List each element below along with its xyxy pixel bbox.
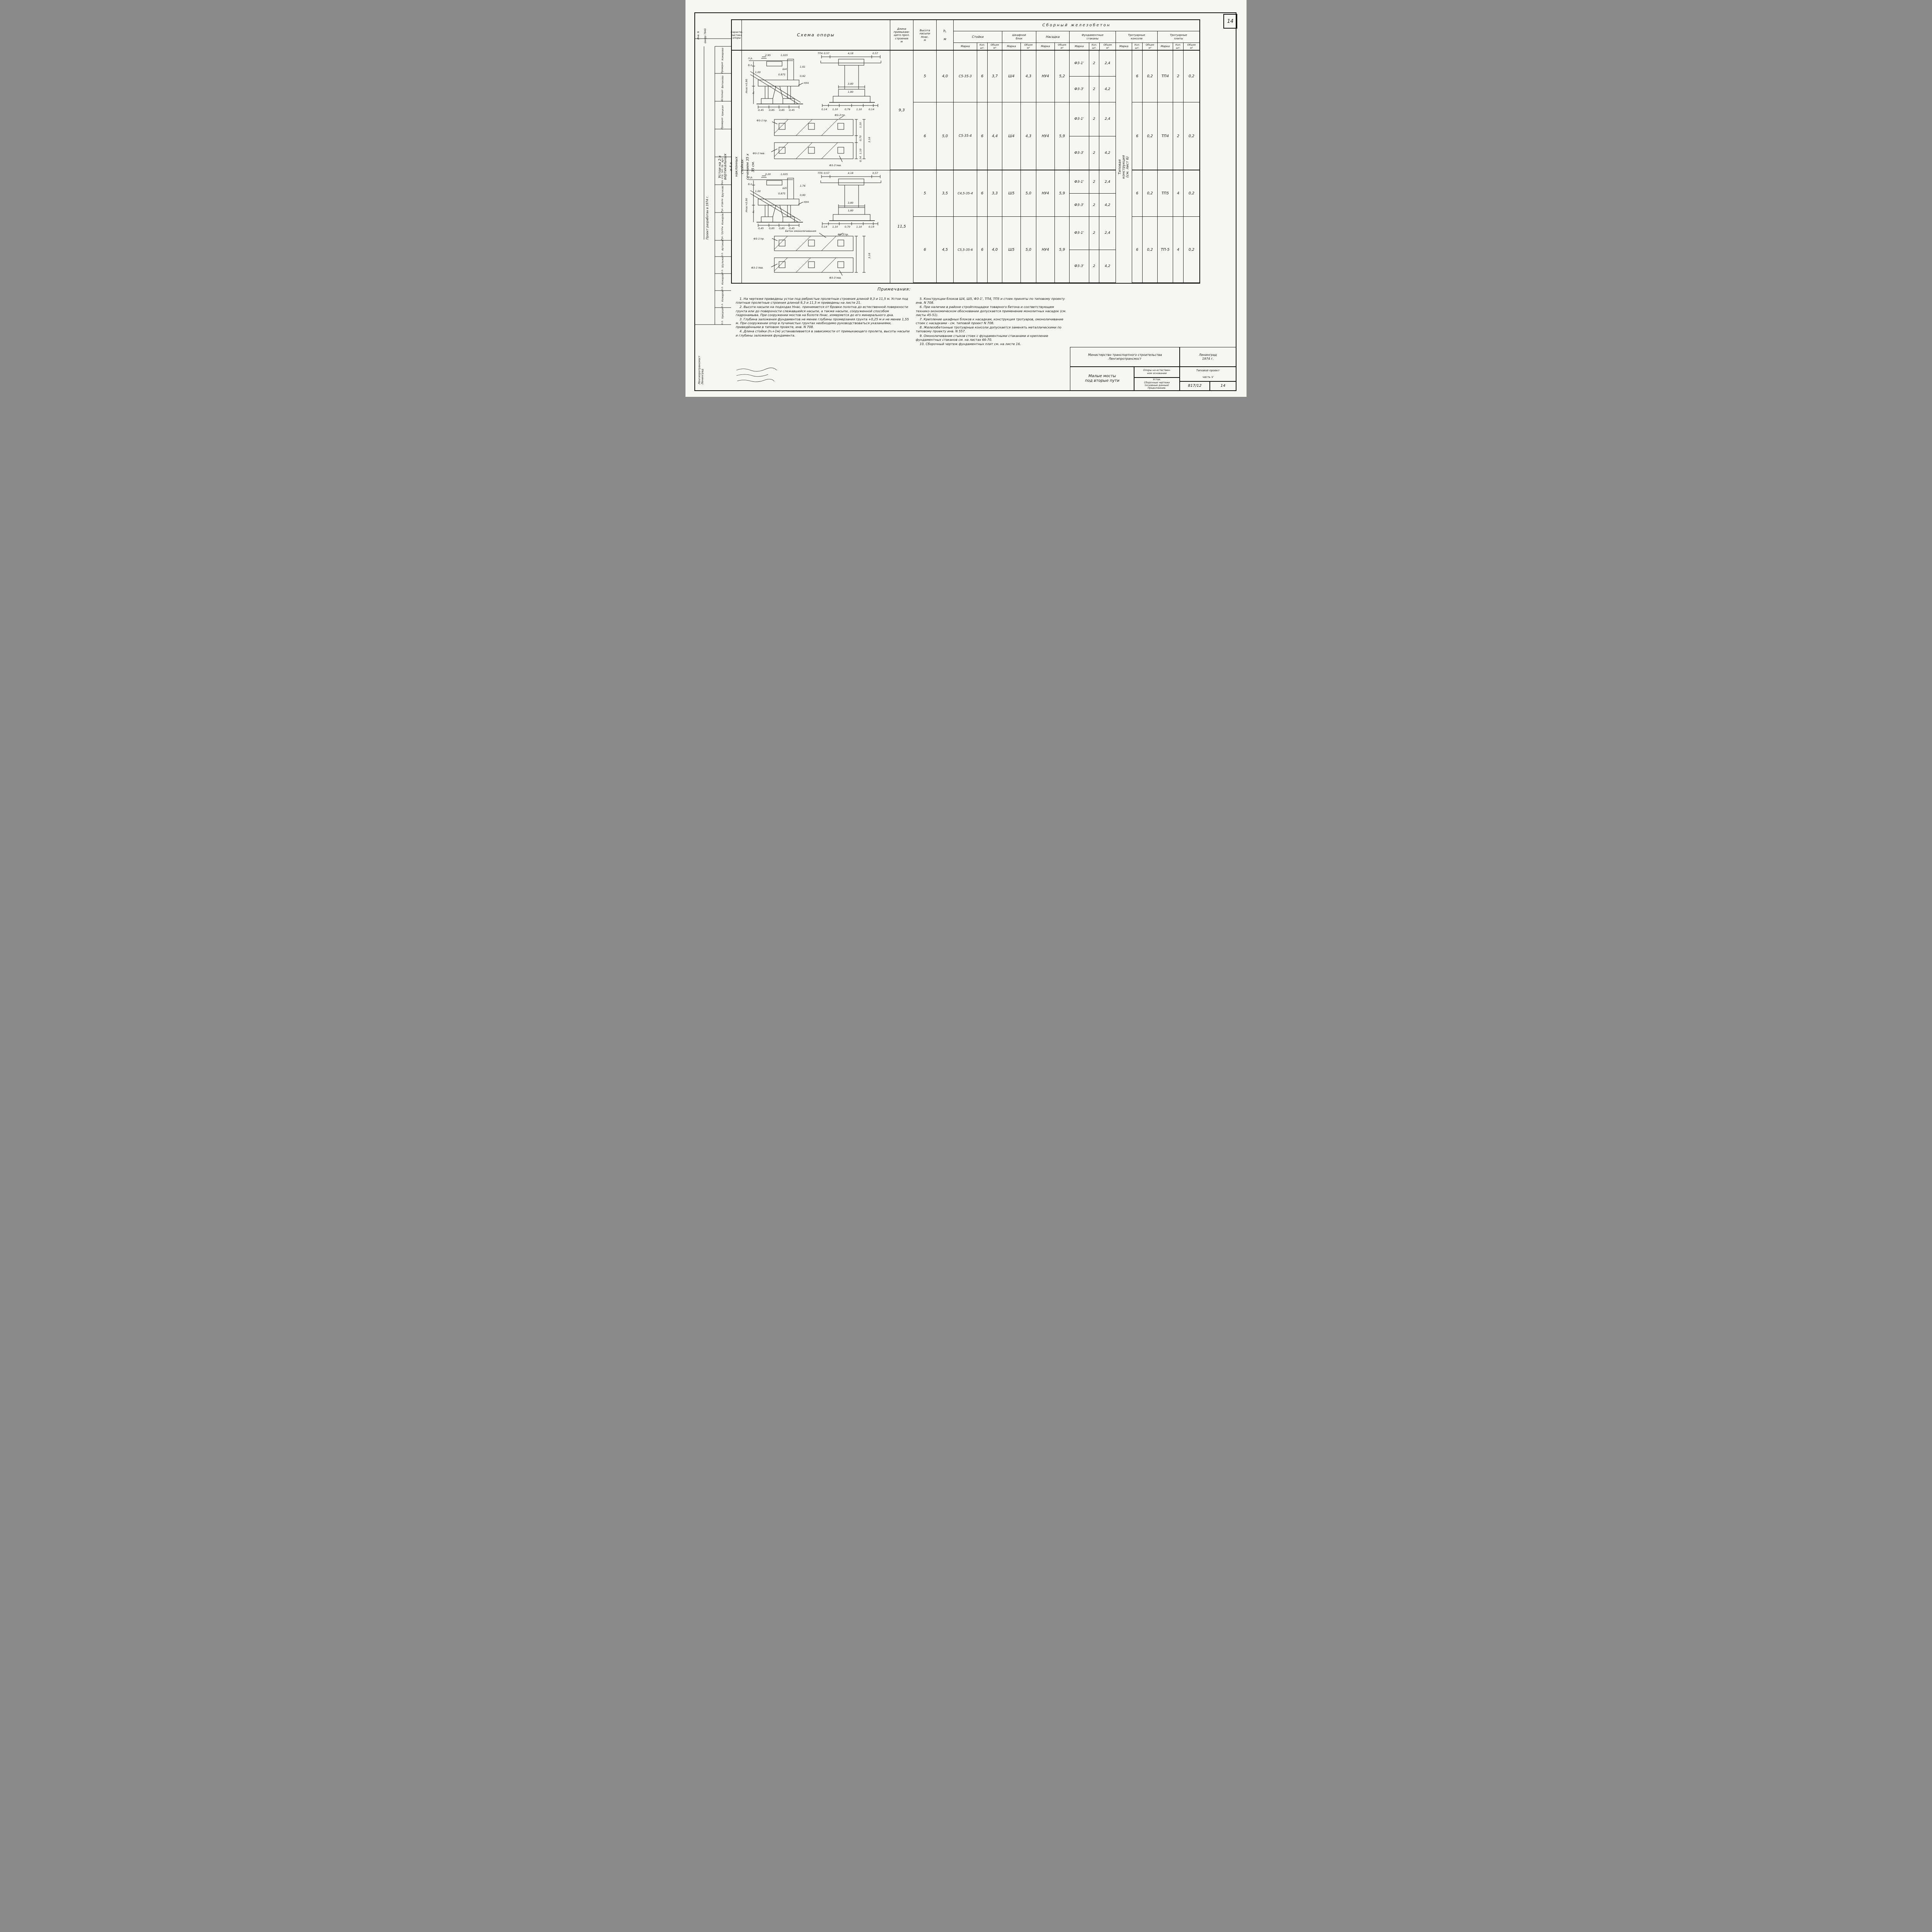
cell-hnas: 6 bbox=[913, 217, 937, 283]
cell-fund-kol: 2 bbox=[1089, 102, 1100, 136]
cell-stoiki-marka: С4,5-35-4 bbox=[954, 170, 977, 217]
notes-left-column: 1. На чертеже приведены устои под ребрис… bbox=[736, 297, 913, 338]
cell-plity-kol: 4 bbox=[1173, 217, 1184, 283]
cell-fund-kol: 2 bbox=[1089, 250, 1100, 283]
dimension-label: 0,14 bbox=[821, 225, 827, 228]
drawing-labels-g2: п.р.б.п.3,201,025Ш50,8751,760,90НУ41,00Н… bbox=[742, 170, 890, 283]
subheader-obj: Объем м³ bbox=[1021, 43, 1036, 51]
subheader-marka: Марка bbox=[1116, 43, 1132, 51]
header-group-fund: Фундаментные стаканы bbox=[1070, 31, 1116, 43]
notes-right-column: 5. Конструкции блоков Ш4, Ш5, Ф3-1', ТП4… bbox=[916, 297, 1067, 346]
cell-nasadka-obj: 5,2 bbox=[1055, 51, 1070, 102]
stamp-entry: п.п.Комарова bbox=[715, 274, 730, 291]
cell-stoiki-obj: 4,0 bbox=[988, 217, 1002, 283]
dimension-label: 0,875 bbox=[778, 192, 786, 195]
title-block-sheet-num: 14 bbox=[1209, 381, 1236, 391]
stamp-role: п.л. bbox=[721, 303, 724, 308]
cell-fund-block: Ф3-1' 2 2,4 Ф3-3' 2 4,2 bbox=[1070, 170, 1116, 217]
header-group-stoiki: Стойки bbox=[954, 31, 1002, 43]
cell-shkaf-obj: 4,3 bbox=[1021, 102, 1036, 170]
cell-plity-obj: 0,2 bbox=[1184, 51, 1199, 102]
cell-konsoli-kol: 6 bbox=[1132, 170, 1143, 217]
drawing-sheet: 14 Инв. N Шифр 7849 Проект разработан в … bbox=[685, 0, 1247, 397]
header-h: h, м bbox=[937, 20, 954, 51]
title-block-city-year: Ленинград 1974 г. bbox=[1179, 347, 1236, 367]
note-item: 6. При наличии в районе стройплощадки то… bbox=[916, 305, 1067, 317]
subheader-obj: Объем м³ bbox=[1100, 43, 1116, 51]
cell-stoiki-obj: 3,7 bbox=[988, 51, 1002, 102]
dimension-label: 1,10 bbox=[856, 225, 862, 228]
dimension-label: 3,18 bbox=[868, 137, 871, 143]
note-item: 4. Длина стойки (h₁+1м) устанавливается … bbox=[736, 329, 913, 337]
cell-stoiki-kol: 6 bbox=[977, 217, 988, 283]
subheader-marka: Марка bbox=[954, 43, 977, 51]
header-group-nasadka: Насадка bbox=[1036, 31, 1070, 43]
stamp-role: Исполнил bbox=[721, 90, 724, 101]
dimension-label: 0,85 bbox=[769, 109, 774, 112]
table-header: Характе- ристика опоры Схема опоры Длина… bbox=[732, 20, 1199, 51]
dimension-label: 0,45 bbox=[789, 109, 794, 112]
cell-h: 5,0 bbox=[937, 102, 954, 170]
subheader-kol: Кол. шт. bbox=[1173, 43, 1184, 51]
dimension-label: 4,18 bbox=[848, 52, 853, 55]
inventory-number-label: Инв. N bbox=[697, 31, 700, 39]
dimension-label: 0,76 bbox=[845, 108, 850, 111]
dimension-label: 0,14 bbox=[869, 108, 874, 111]
title-block-sheet-title: Устои. Сборочные чертежи (основные данны… bbox=[1134, 377, 1180, 391]
dimension-label: 1,10 bbox=[859, 149, 862, 154]
subheader-obj: Объем м³ bbox=[1184, 43, 1199, 51]
dimension-label: Ш5 bbox=[782, 187, 787, 190]
cell-stoiki-kol: 6 bbox=[977, 170, 988, 217]
sheet-number-box: 14 bbox=[1223, 14, 1237, 29]
dimension-label: Ш4 bbox=[782, 68, 787, 71]
dimension-label: 0,90 bbox=[800, 194, 805, 197]
schema-cell-group2: п.р.б.п.3,201,025Ш50,8751,760,90НУ41,00Н… bbox=[742, 170, 890, 283]
dimension-label: Бетон омоноличивания bbox=[785, 230, 816, 233]
dimension-label: 0,14 bbox=[821, 108, 827, 111]
cell-plity-obj: 0,2 bbox=[1184, 217, 1199, 283]
cell-fund-kol: 2 bbox=[1089, 194, 1100, 216]
dimension-label: 0,85 bbox=[769, 227, 774, 230]
konsoli-marka-cell: Типовая конструкция (см. лист 6) bbox=[1116, 51, 1132, 283]
cell-fund-kol: 2 bbox=[1089, 217, 1100, 250]
cell-stoiki-kol: 6 bbox=[977, 51, 988, 102]
stamp-role: Проверил bbox=[721, 117, 724, 129]
dimension-label: б.п. bbox=[748, 64, 753, 67]
main-table: Характе- ристика опоры Схема опоры Длина… bbox=[731, 19, 1200, 284]
stamp-role: п.п. bbox=[721, 252, 724, 257]
schema-cell-group1: п.р.б.п.2,951,025Ш40,8751,610,92НУ41,00Н… bbox=[742, 51, 890, 170]
stamp-entry: п.л.Комарова bbox=[715, 291, 730, 308]
dimension-label: 1,61 bbox=[800, 65, 805, 68]
stamp-role: п.п. bbox=[721, 269, 724, 274]
dimension-label: п.р. bbox=[748, 57, 753, 60]
title-block-object: Малые мосты под вторые пути bbox=[1070, 366, 1134, 391]
header-embankment-height: Высота насыпи Ннас. м bbox=[913, 20, 937, 51]
cell-fund-kol: 2 bbox=[1089, 170, 1100, 193]
cell-fund-marka: Ф3-1' bbox=[1070, 217, 1089, 250]
stamp-role: п.п. bbox=[721, 320, 724, 325]
dimension-label: 1,025 bbox=[781, 173, 788, 176]
dimension-label: 3,80 bbox=[848, 201, 853, 204]
note-item: 7. Крепление шкафных блоков к насадкам, … bbox=[916, 317, 1067, 325]
dimension-label: ТП5 bbox=[818, 172, 823, 175]
cell-fund-obj: 2,4 bbox=[1099, 170, 1116, 193]
cell-fund-marka: Ф3-3' bbox=[1070, 77, 1089, 102]
dimension-label: h₁ bbox=[752, 91, 755, 94]
dimension-label: Ф3-3'пр. bbox=[835, 114, 845, 117]
subheader-obj: Объем м³ bbox=[1055, 43, 1070, 51]
header-characteristic: Характе- ристика опоры bbox=[732, 20, 742, 51]
cell-nasadka-marka: НУ4 bbox=[1036, 51, 1055, 102]
dimension-label: 0,57 bbox=[872, 52, 878, 55]
cell-shkaf-obj: 5,0 bbox=[1021, 217, 1036, 283]
title-block-section: Опоры на естествен- ном основании bbox=[1134, 366, 1180, 378]
dimension-label: б.п. bbox=[748, 183, 753, 186]
cell-plity-marka: ТП5 bbox=[1158, 170, 1173, 217]
dimension-label: п.р. bbox=[748, 176, 753, 179]
cell-stoiki-marka: С5,5-35-6 bbox=[954, 217, 977, 283]
stamp-entry: Рук. группыКомарова bbox=[715, 213, 730, 240]
stamp-name: Комарова bbox=[721, 48, 724, 60]
length-cell-group2: 11,5 bbox=[890, 170, 913, 283]
cell-hnas: 6 bbox=[913, 102, 937, 170]
stamp-name: Ветюкова bbox=[721, 76, 724, 88]
dimension-label: 1,10 bbox=[859, 122, 862, 128]
stamp-name: Комарова bbox=[721, 274, 724, 285]
cell-shkaf-obj: 5,0 bbox=[1021, 170, 1036, 217]
cell-konsoli-obj: 0,2 bbox=[1143, 217, 1158, 283]
dimension-label: Ф3-1'пр. bbox=[757, 119, 767, 122]
cell-h: 3,5 bbox=[937, 170, 954, 217]
dimension-label: НУ4 bbox=[804, 82, 809, 85]
length-value: 9,3 bbox=[899, 108, 905, 112]
subheader-marka: Марка bbox=[1158, 43, 1173, 51]
cell-h: 4,0 bbox=[937, 51, 954, 102]
cell-nasadka-obj: 5,9 bbox=[1055, 102, 1070, 170]
subheader-marka: Марка bbox=[1070, 43, 1089, 51]
dimension-label: 1,10 bbox=[856, 108, 862, 111]
dimension-label: Ннас+0,90 bbox=[745, 79, 748, 93]
cell-fund-block: Ф3-1' 2 2,4 Ф3-3' 2 4,2 bbox=[1070, 217, 1116, 283]
cell-plity-kol: 4 bbox=[1173, 170, 1184, 217]
dimension-label: 0,875 bbox=[778, 73, 786, 76]
cell-plity-obj: 0,2 bbox=[1184, 170, 1199, 217]
cell-shkaf-marka: Ш4 bbox=[1002, 51, 1021, 102]
cell-fund-marka: Ф3-3' bbox=[1070, 194, 1089, 216]
dimension-label: 0,57 bbox=[872, 172, 878, 175]
cell-nasadka-marka: НУ4 bbox=[1036, 217, 1055, 283]
konsoli-marka-note: Типовая конструкция (см. лист 6) bbox=[1118, 155, 1130, 179]
length-cell-group1: 9,3 bbox=[890, 51, 913, 170]
margin-year-caption: Проект разработан в 1974 г. bbox=[706, 196, 709, 240]
cell-h: 4,5 bbox=[937, 217, 954, 283]
cell-shkaf-marka: Ш5 bbox=[1002, 170, 1021, 217]
dimension-label: Ф3-3'лев. bbox=[829, 276, 842, 279]
dimension-label: 0,14 bbox=[869, 225, 874, 228]
stamp-role: Проверил bbox=[721, 62, 724, 73]
title-block-ministry: Министерство транспортного строительства… bbox=[1070, 347, 1180, 367]
dimension-label: Ф3-1'лев. bbox=[753, 152, 765, 155]
dimension-label: 0,57 bbox=[824, 172, 829, 175]
cell-plity-kol: 2 bbox=[1173, 102, 1184, 170]
cipher-label: Шифр 7849 bbox=[704, 29, 707, 43]
stamp-name: Урецкая bbox=[721, 308, 724, 318]
dimension-label: Ф3-3'лев. bbox=[829, 164, 842, 167]
cell-hnas: 5 bbox=[913, 51, 937, 102]
dimension-label: 1,00 bbox=[755, 71, 760, 74]
cell-fund-obj: 4,2 bbox=[1099, 194, 1116, 216]
cell-fund-kol: 2 bbox=[1089, 51, 1100, 76]
dimension-label: ТП4 bbox=[818, 52, 823, 55]
dimension-label: 3,20 bbox=[765, 173, 770, 176]
note-item: 10. Сборочный чертеж фундаментных плит с… bbox=[916, 342, 1067, 346]
cell-shkaf-marka: Ш5 bbox=[1002, 217, 1021, 283]
dimension-label: 3,80 bbox=[848, 82, 853, 85]
note-item: 8. Железобетонные тротуарные консоли доп… bbox=[916, 325, 1067, 333]
cell-fund-block: Ф3-1' 2 2,4 Ф3-3' 2 4,2 bbox=[1070, 51, 1116, 102]
stamp-name: Комарова bbox=[721, 291, 724, 302]
cell-nasadka-marka: НУ4 bbox=[1036, 170, 1055, 217]
header-schema: Схема опоры bbox=[742, 20, 890, 51]
dimension-label: 4,18 bbox=[848, 172, 853, 175]
header-group-konsoli: Тротуарные консоли bbox=[1116, 31, 1158, 43]
stamp-entry: п.п.Артаманов bbox=[715, 240, 730, 257]
dimension-label: Ф3-3'пр. bbox=[838, 233, 849, 236]
cell-stoiki-obj: 3,3 bbox=[988, 170, 1002, 217]
dimension-label: 2,95 bbox=[765, 54, 770, 57]
stamp-name: Артаманов bbox=[721, 240, 724, 251]
margin-org-caption: Ленгипротрансмост Ленинград bbox=[698, 356, 704, 384]
dimension-label: 1,80 bbox=[848, 90, 853, 94]
dimension-label: НУ4 bbox=[804, 201, 809, 204]
subheader-marka: Марка bbox=[1036, 43, 1055, 51]
notes-title: Примечания: bbox=[878, 287, 911, 292]
stamp-entry: Рук. отделаБручковский bbox=[715, 185, 730, 213]
note-item: 2. Высота насыпи на подходах Ннас. прини… bbox=[736, 305, 913, 317]
cell-fund-obj: 2,4 bbox=[1099, 102, 1116, 136]
table-body: 5 4,0 С5-35-3 6 3,7 Ш4 4,3 НУ4 5,2 Ф3-1'… bbox=[732, 51, 1199, 283]
header-length: Длина примыкаю- щего прол. строения м bbox=[890, 20, 913, 51]
dimension-label: 0,85 bbox=[779, 109, 784, 112]
dimension-label: 1,00 bbox=[755, 190, 760, 193]
dimension-label: 1,80 bbox=[848, 209, 853, 212]
stamp-role: Рук. отдела bbox=[721, 199, 724, 213]
dimension-label: 1,76 bbox=[800, 184, 805, 187]
cell-konsoli-kol: 6 bbox=[1132, 102, 1143, 170]
stamp-name: Бручковский bbox=[721, 185, 724, 197]
cell-stoiki-marka: С5-35-4 bbox=[954, 102, 977, 170]
dimension-label: 0,85 bbox=[779, 227, 784, 230]
cell-plity-marka: ТП4 bbox=[1158, 102, 1173, 170]
subheader-marka: Марка bbox=[1002, 43, 1021, 51]
note-item: 5. Конструкции блоков Ш4, Ш5, Ф3-1', ТП4… bbox=[916, 297, 1067, 304]
cell-fund-marka: Ф3-1' bbox=[1070, 51, 1089, 76]
cell-fund-kol: 2 bbox=[1089, 77, 1100, 102]
row-label-cell: Устои на 2-х вертикальных и 4-х наклонны… bbox=[732, 51, 742, 283]
note-item: 1. На чертеже приведены устои под ребрис… bbox=[736, 297, 913, 304]
note-item: 3. Глубина заложения фундаментов не мене… bbox=[736, 317, 913, 329]
cell-plity-marka: ТП4 bbox=[1158, 51, 1173, 102]
cell-fund-marka: Ф3-3' bbox=[1070, 250, 1089, 283]
cell-plity-kol: 2 bbox=[1173, 51, 1184, 102]
cell-stoiki-obj: 4,4 bbox=[988, 102, 1002, 170]
cell-fund-obj: 2,4 bbox=[1099, 51, 1116, 76]
stamp-entry: ПроверилУрецкая bbox=[715, 102, 730, 129]
stamp-entry: ИсполнилВетюкова bbox=[715, 74, 730, 101]
header-group-shkaf: Шкафной блок bbox=[1002, 31, 1036, 43]
stamp-entry: ПроверилКомарова bbox=[715, 46, 730, 73]
cell-stoiki-kol: 6 bbox=[977, 102, 988, 170]
dimension-label: 1,10 bbox=[832, 108, 838, 111]
cell-shkaf-obj: 4,3 bbox=[1021, 51, 1036, 102]
subheader-obj: Объем м³ bbox=[1143, 43, 1158, 51]
dimension-label: 1,10 bbox=[832, 225, 838, 228]
dimension-label: 0,14 bbox=[859, 156, 862, 162]
cell-shkaf-marka: Ш4 bbox=[1002, 102, 1021, 170]
cell-stoiki-marka: С5-35-3 bbox=[954, 51, 977, 102]
cell-fund-marka: Ф3-1' bbox=[1070, 102, 1089, 136]
cell-konsoli-obj: 0,2 bbox=[1143, 51, 1158, 102]
dimension-label: Ф3-1'пр. bbox=[753, 237, 764, 240]
stamp-name: Шульман bbox=[721, 257, 724, 268]
abutment-drawing-group1: п.р.б.п.2,951,025Ш40,8751,610,92НУ41,00Н… bbox=[742, 51, 890, 170]
cell-konsoli-kol: 6 bbox=[1132, 51, 1143, 102]
cell-fund-kol: 2 bbox=[1089, 136, 1100, 170]
cell-fund-marka: Ф3-1' bbox=[1070, 170, 1089, 193]
stamp-name: Комарова bbox=[721, 213, 724, 225]
drawing-labels-g1: п.р.б.п.2,951,025Ш40,8751,610,92НУ41,00Н… bbox=[742, 51, 890, 170]
dimension-label: 0,45 bbox=[758, 109, 764, 112]
cell-fund-obj: 4,2 bbox=[1099, 250, 1116, 283]
header-precast-concrete: Сборный железобетон bbox=[954, 20, 1199, 31]
dimension-label: 0,70 bbox=[859, 136, 862, 141]
dimension-label: 0,45 bbox=[758, 227, 764, 230]
header-group-plity: Тротуарные плиты bbox=[1158, 31, 1199, 43]
cell-nasadka-obj: 5,9 bbox=[1055, 170, 1070, 217]
stamp-entry: п.п.Урецкая bbox=[715, 308, 730, 325]
title-block-number: 817/12 bbox=[1179, 381, 1210, 391]
length-value: 11,5 bbox=[897, 224, 906, 229]
stamp-entry: п.п.Шульман bbox=[715, 257, 730, 274]
cell-hnas: 5 bbox=[913, 170, 937, 217]
cell-fund-obj: 2,4 bbox=[1099, 217, 1116, 250]
title-block-project-kind: Типовой проект часть V bbox=[1179, 366, 1236, 382]
cell-plity-marka: ТП-5 bbox=[1158, 217, 1173, 283]
cell-plity-obj: 0,2 bbox=[1184, 102, 1199, 170]
subheader-kol: Кол. шт. bbox=[1089, 43, 1100, 51]
dimension-label: h₁ bbox=[752, 210, 755, 213]
cell-fund-obj: 4,2 bbox=[1099, 136, 1116, 170]
cell-fund-marka: Ф3-3' bbox=[1070, 136, 1089, 170]
stamp-role: Рук. группы bbox=[721, 226, 724, 240]
subheader-kol: Кол. шт. bbox=[1132, 43, 1143, 51]
cell-konsoli-obj: 0,2 bbox=[1143, 102, 1158, 170]
dimension-label: 0,57 bbox=[824, 52, 829, 55]
note-item: 9. Омоноличивание стыков стоек с фундаме… bbox=[916, 334, 1067, 342]
dimension-label: 3,18 bbox=[868, 253, 871, 259]
stamp-name: Урецкая bbox=[721, 105, 724, 116]
cell-konsoli-obj: 0,2 bbox=[1143, 170, 1158, 217]
sheet-number: 14 bbox=[1227, 19, 1234, 24]
cell-fund-obj: 4,2 bbox=[1099, 77, 1116, 102]
subheader-obj: Объем м³ bbox=[988, 43, 1002, 51]
dimension-label: 0,92 bbox=[800, 75, 805, 78]
cell-nasadka-marka: НУ4 bbox=[1036, 102, 1055, 170]
subheader-kol: Кол. шт. bbox=[977, 43, 988, 51]
stamp-role: п.п. bbox=[721, 286, 724, 291]
abutment-drawing-group2: п.р.б.п.3,201,025Ш50,8751,760,90НУ41,00Н… bbox=[742, 170, 890, 283]
dimension-label: 0,70 bbox=[845, 225, 850, 228]
dimension-label: Ф3-1'лев. bbox=[751, 266, 764, 269]
cell-fund-block: Ф3-1' 2 2,4 Ф3-3' 2 4,2 bbox=[1070, 102, 1116, 170]
cell-nasadka-obj: 5,9 bbox=[1055, 217, 1070, 283]
dimension-label: 1,025 bbox=[781, 54, 788, 57]
cell-konsoli-kol: 6 bbox=[1132, 217, 1143, 283]
dimension-label: Ннас+0,90 bbox=[745, 198, 748, 212]
